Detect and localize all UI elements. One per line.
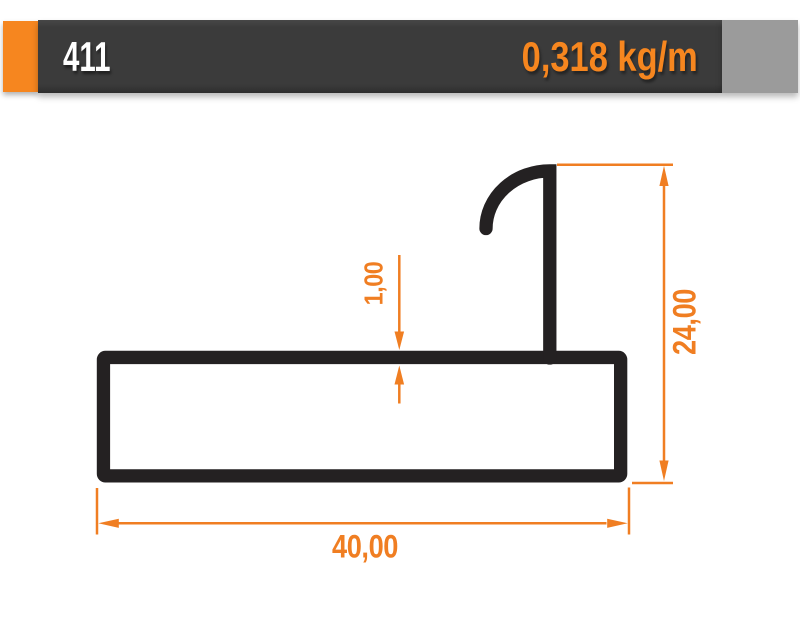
catalog-page: 411 0,318 kg/m 1,00 24,00 [0, 0, 800, 640]
dim-height-arrow-up [659, 166, 668, 186]
dim-height-arrow-down [659, 461, 668, 482]
dim-width-label: 40,00 [332, 529, 398, 565]
profile-outline [103, 171, 620, 476]
profile-cross-section-drawing: 1,00 24,00 40,00 [0, 0, 800, 640]
profile-tube-body [103, 357, 620, 475]
dim-height-label: 24,00 [667, 289, 703, 355]
dim-thickness-arrow-down [395, 332, 405, 351]
dim-thickness-arrow-up [395, 366, 405, 385]
dim-width-arrow-right [607, 519, 628, 528]
profile-hook-flange [486, 171, 550, 358]
dim-total-height: 24,00 [557, 165, 703, 483]
dim-width-arrow-left [98, 519, 119, 528]
dim-thickness-label: 1,00 [360, 262, 388, 306]
dim-wall-thickness: 1,00 [360, 255, 404, 404]
dim-total-width: 40,00 [97, 488, 629, 566]
